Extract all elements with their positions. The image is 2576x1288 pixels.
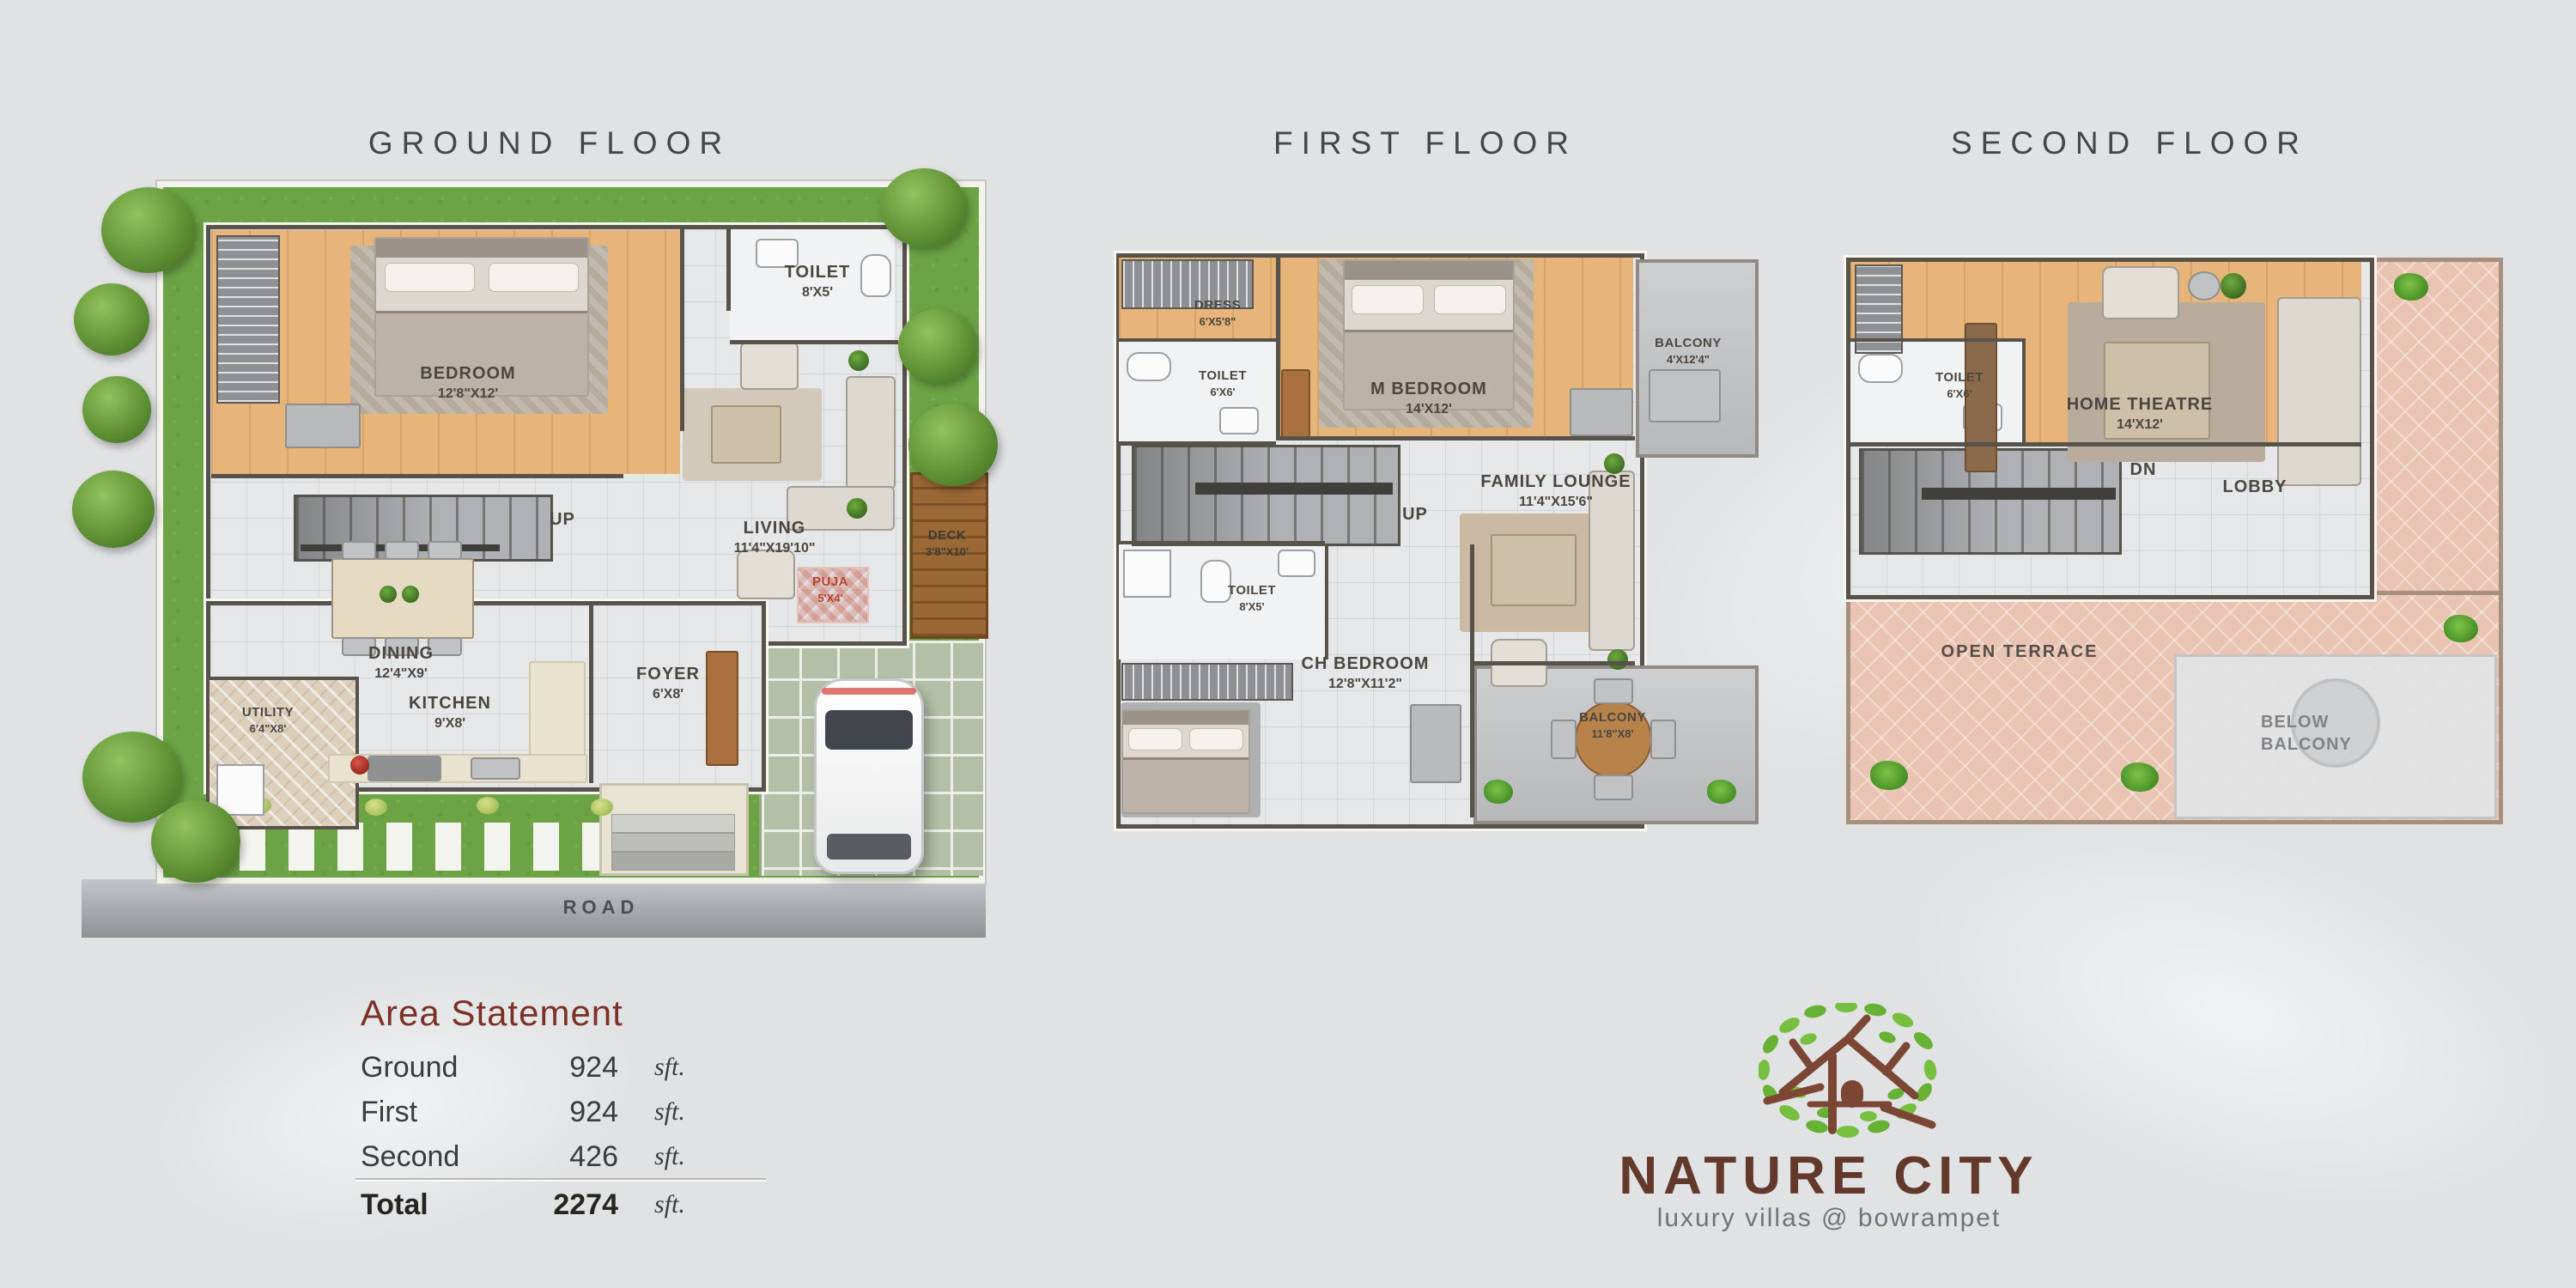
coffee-table xyxy=(711,405,781,464)
lobby-label: LOBBY xyxy=(2223,477,2287,497)
tree-icon xyxy=(74,283,149,355)
toilet-wc-icon xyxy=(1200,560,1231,603)
sink-icon xyxy=(471,757,520,780)
wall xyxy=(1850,442,2361,447)
tree-icon xyxy=(908,404,998,486)
road-strip xyxy=(82,879,986,938)
balcony-chair xyxy=(1594,775,1633,800)
washbasin-icon xyxy=(1219,407,1259,434)
table-decor xyxy=(402,586,419,603)
dn-label: DN xyxy=(2130,460,2157,480)
dining-chair xyxy=(342,541,376,560)
car-icon xyxy=(814,678,924,874)
area-row-value: 924 xyxy=(507,1051,618,1084)
flower-bush-icon xyxy=(365,799,387,816)
bed-icon xyxy=(1121,709,1250,814)
foyer-bench xyxy=(706,651,738,766)
balcony-chair xyxy=(1551,720,1577,759)
armchair-icon xyxy=(2102,266,2179,319)
area-row-label: Ground xyxy=(361,1051,458,1084)
toilet-wc-icon xyxy=(860,254,891,297)
wall xyxy=(1119,338,1276,342)
toilet-wc-icon xyxy=(1858,354,1903,383)
room-label-toilet-mid: TOILET 8'X5' xyxy=(1228,582,1276,614)
room-label-deck: DECK 3'8"X10' xyxy=(926,527,969,559)
area-total-label: Total xyxy=(361,1188,428,1222)
porch-step xyxy=(611,852,735,871)
first-floor-title: FIRST FLOOR xyxy=(1273,125,1577,161)
area-row-label: Second xyxy=(361,1140,459,1174)
wall xyxy=(1850,338,2022,342)
wall xyxy=(680,225,684,431)
armchair-icon xyxy=(740,340,799,390)
room-label-toilet: TOILET 6'X6' xyxy=(1935,369,1984,401)
nature-city-logo-emblem xyxy=(1759,1003,1939,1139)
room-label-m-bedroom: M BEDROOM 14'X12' xyxy=(1370,378,1487,419)
area-total-unit: sft. xyxy=(654,1190,685,1219)
balcony-lounger xyxy=(1649,369,1721,422)
area-row-value: 924 xyxy=(507,1096,618,1129)
room-label-dining: DINING 12'4"X9' xyxy=(368,642,434,683)
tree-icon xyxy=(881,168,967,247)
up-label: UP xyxy=(1402,505,1428,525)
wall xyxy=(1119,441,1276,446)
lounge-table xyxy=(1491,534,1577,606)
flower-bush-icon xyxy=(477,797,499,814)
open-terrace-label: OPEN TERRACE xyxy=(1941,642,2099,662)
study-desk xyxy=(285,404,361,448)
cooking-pot-icon xyxy=(350,756,369,775)
room-label-dress: DRESS 6'X5'8" xyxy=(1194,297,1241,329)
stair-rail xyxy=(1195,483,1393,495)
study-desk xyxy=(1410,704,1461,783)
room-label-ch-bedroom: CH BEDROOM 12'8"X11'2" xyxy=(1302,653,1430,694)
grass-tuft-icon xyxy=(1707,780,1736,804)
grass-tuft-icon xyxy=(1484,780,1513,804)
wall xyxy=(2022,338,2026,442)
room-label-balcony-bottom: BALCONY 11'8"X8' xyxy=(1579,709,1646,741)
nature-city-floor-plan-poster: GROUND FLOOR FIRST FLOOR SECOND FLOOR RO… xyxy=(0,0,2576,1288)
plant-icon xyxy=(2221,273,2246,299)
tree-icon xyxy=(101,187,196,273)
study-desk xyxy=(1570,388,1633,436)
room-label-home-theatre: HOME THEATRE 14'X12' xyxy=(2067,393,2214,434)
plant-icon xyxy=(1607,649,1628,670)
table-decor xyxy=(380,586,397,603)
grass-tuft-icon xyxy=(2121,762,2159,792)
wall xyxy=(726,225,731,311)
area-row-unit: sft. xyxy=(654,1053,685,1082)
room-label-living: LIVING 11'4"X19'10" xyxy=(734,517,816,558)
room-label-balcony-right: BALCONY 4'X12'4" xyxy=(1655,335,1722,367)
below-balcony-label: BELOW BALCONY xyxy=(2261,711,2407,756)
wall xyxy=(1473,661,1635,665)
area-row-label: First xyxy=(361,1096,417,1129)
ground-floor-title: GROUND FLOOR xyxy=(368,125,731,161)
room-label-family-lounge: FAMILY LOUNGE 11'4"X15'6" xyxy=(1480,471,1631,512)
tree-icon xyxy=(82,376,151,443)
dresser xyxy=(1281,369,1310,438)
wall xyxy=(211,474,623,478)
room-label-toilet: TOILET 8'X5' xyxy=(785,261,851,302)
open-terrace-right xyxy=(2363,258,2503,603)
side-table xyxy=(2188,271,2221,301)
plant-icon xyxy=(847,498,867,519)
room-label-foyer: FOYER 6'X8' xyxy=(636,663,700,704)
staircase xyxy=(294,495,553,562)
washing-machine-icon xyxy=(216,764,264,816)
tree-icon xyxy=(72,471,155,548)
toilet-wc-icon xyxy=(1127,352,1171,381)
wall xyxy=(1276,436,1635,440)
dining-chair xyxy=(385,541,419,560)
tree-icon xyxy=(898,309,977,383)
logo-tagline: luxury villas @ bowrampet xyxy=(1657,1204,2002,1233)
sofa-icon xyxy=(846,376,896,489)
wardrobe-icon xyxy=(1121,663,1293,701)
wardrobe-icon xyxy=(216,235,280,404)
washbasin-icon xyxy=(1278,550,1315,577)
door-icon xyxy=(1841,1080,1863,1108)
grass-tuft-icon xyxy=(2444,615,2478,642)
porch-step xyxy=(611,814,735,833)
stove-icon xyxy=(368,756,441,781)
plant-icon xyxy=(848,350,869,371)
area-row-value: 426 xyxy=(507,1140,618,1174)
logo-wordmark: NATURE CITY xyxy=(1619,1145,2038,1206)
grass-tuft-icon xyxy=(1870,761,1908,790)
area-row-unit: sft. xyxy=(654,1142,685,1171)
area-row-unit: sft. xyxy=(654,1097,685,1127)
flower-bush-icon xyxy=(591,799,613,816)
room-label-bedroom: BEDROOM 12'8"X12' xyxy=(420,362,515,404)
road-label: ROAD xyxy=(563,896,640,919)
wall xyxy=(1276,258,1280,440)
porch-step xyxy=(611,833,735,852)
up-label: UP xyxy=(550,510,575,530)
balcony-chair xyxy=(1594,678,1633,704)
wall xyxy=(1470,544,1474,817)
balcony-chair xyxy=(1650,720,1676,759)
dining-chair xyxy=(428,541,462,560)
area-table-divider xyxy=(355,1178,766,1180)
shower-icon xyxy=(1123,550,1171,598)
tree-icon xyxy=(151,800,240,883)
area-total-value: 2274 xyxy=(507,1188,618,1222)
grass-tuft-icon xyxy=(2394,273,2428,301)
room-label-utility: UTILITY 6'4"X8' xyxy=(242,704,294,736)
wall xyxy=(1119,541,1325,544)
area-statement-title: Area Statement xyxy=(361,993,623,1034)
wall xyxy=(730,340,898,344)
wall xyxy=(1325,544,1328,659)
staircase xyxy=(1132,445,1400,546)
room-label-puja: PUJA 5'X4' xyxy=(812,574,848,605)
room-label-kitchen: KITCHEN 9'X8' xyxy=(409,692,491,733)
stair-rail xyxy=(1922,488,2116,500)
sofa-icon xyxy=(2277,297,2361,486)
second-floor-title: SECOND FLOOR xyxy=(1951,125,2308,161)
wall xyxy=(589,603,593,783)
room-label-toilet-top: TOILET 6'X6' xyxy=(1199,368,1247,399)
